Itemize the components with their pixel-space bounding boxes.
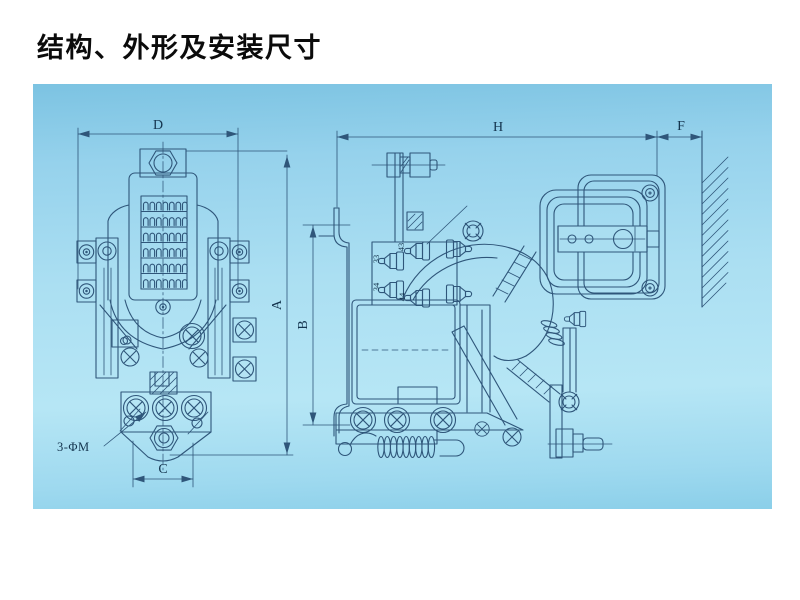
dimension-d: D bbox=[78, 118, 238, 289]
aux-terminal-34: 34 bbox=[371, 282, 381, 291]
dimension-b: B bbox=[296, 225, 350, 425]
right-terminal-pads bbox=[208, 238, 256, 381]
return-spring bbox=[339, 433, 465, 458]
wall-hatching bbox=[702, 131, 728, 307]
dim-label-d: D bbox=[153, 118, 163, 133]
mounting-hole-note: 3-ΦM bbox=[57, 440, 90, 454]
dim-label-f: F bbox=[677, 119, 685, 134]
aux-contact-block: 33 43 34 44 bbox=[371, 240, 472, 307]
dim-label-c: C bbox=[158, 462, 167, 477]
mounting-bracket bbox=[319, 208, 349, 436]
dimension-h: H bbox=[337, 120, 657, 207]
phillips-screw bbox=[463, 221, 483, 241]
dimension-a: A bbox=[170, 151, 293, 455]
aux-terminal-43: 43 bbox=[396, 243, 406, 252]
slide: 结构、外形及安装尺寸 bbox=[0, 0, 800, 600]
coil-box bbox=[352, 300, 490, 412]
aux-terminal-33: 33 bbox=[371, 255, 381, 264]
dim-label-b: B bbox=[296, 320, 311, 329]
contact-block bbox=[150, 372, 177, 394]
engineering-drawing: 3-ΦM D A bbox=[0, 0, 800, 600]
bottom-terminal-block bbox=[120, 392, 211, 461]
dimension-f: F bbox=[657, 119, 702, 140]
armature-arm bbox=[403, 244, 565, 446]
top-terminal-stud bbox=[372, 153, 467, 244]
dim-label-h: H bbox=[493, 120, 503, 135]
terminal-bar bbox=[558, 226, 659, 252]
front-view: 3-ΦM D A bbox=[57, 118, 293, 487]
side-view: 33 43 34 44 bbox=[296, 119, 728, 458]
dim-label-a: A bbox=[270, 299, 285, 310]
